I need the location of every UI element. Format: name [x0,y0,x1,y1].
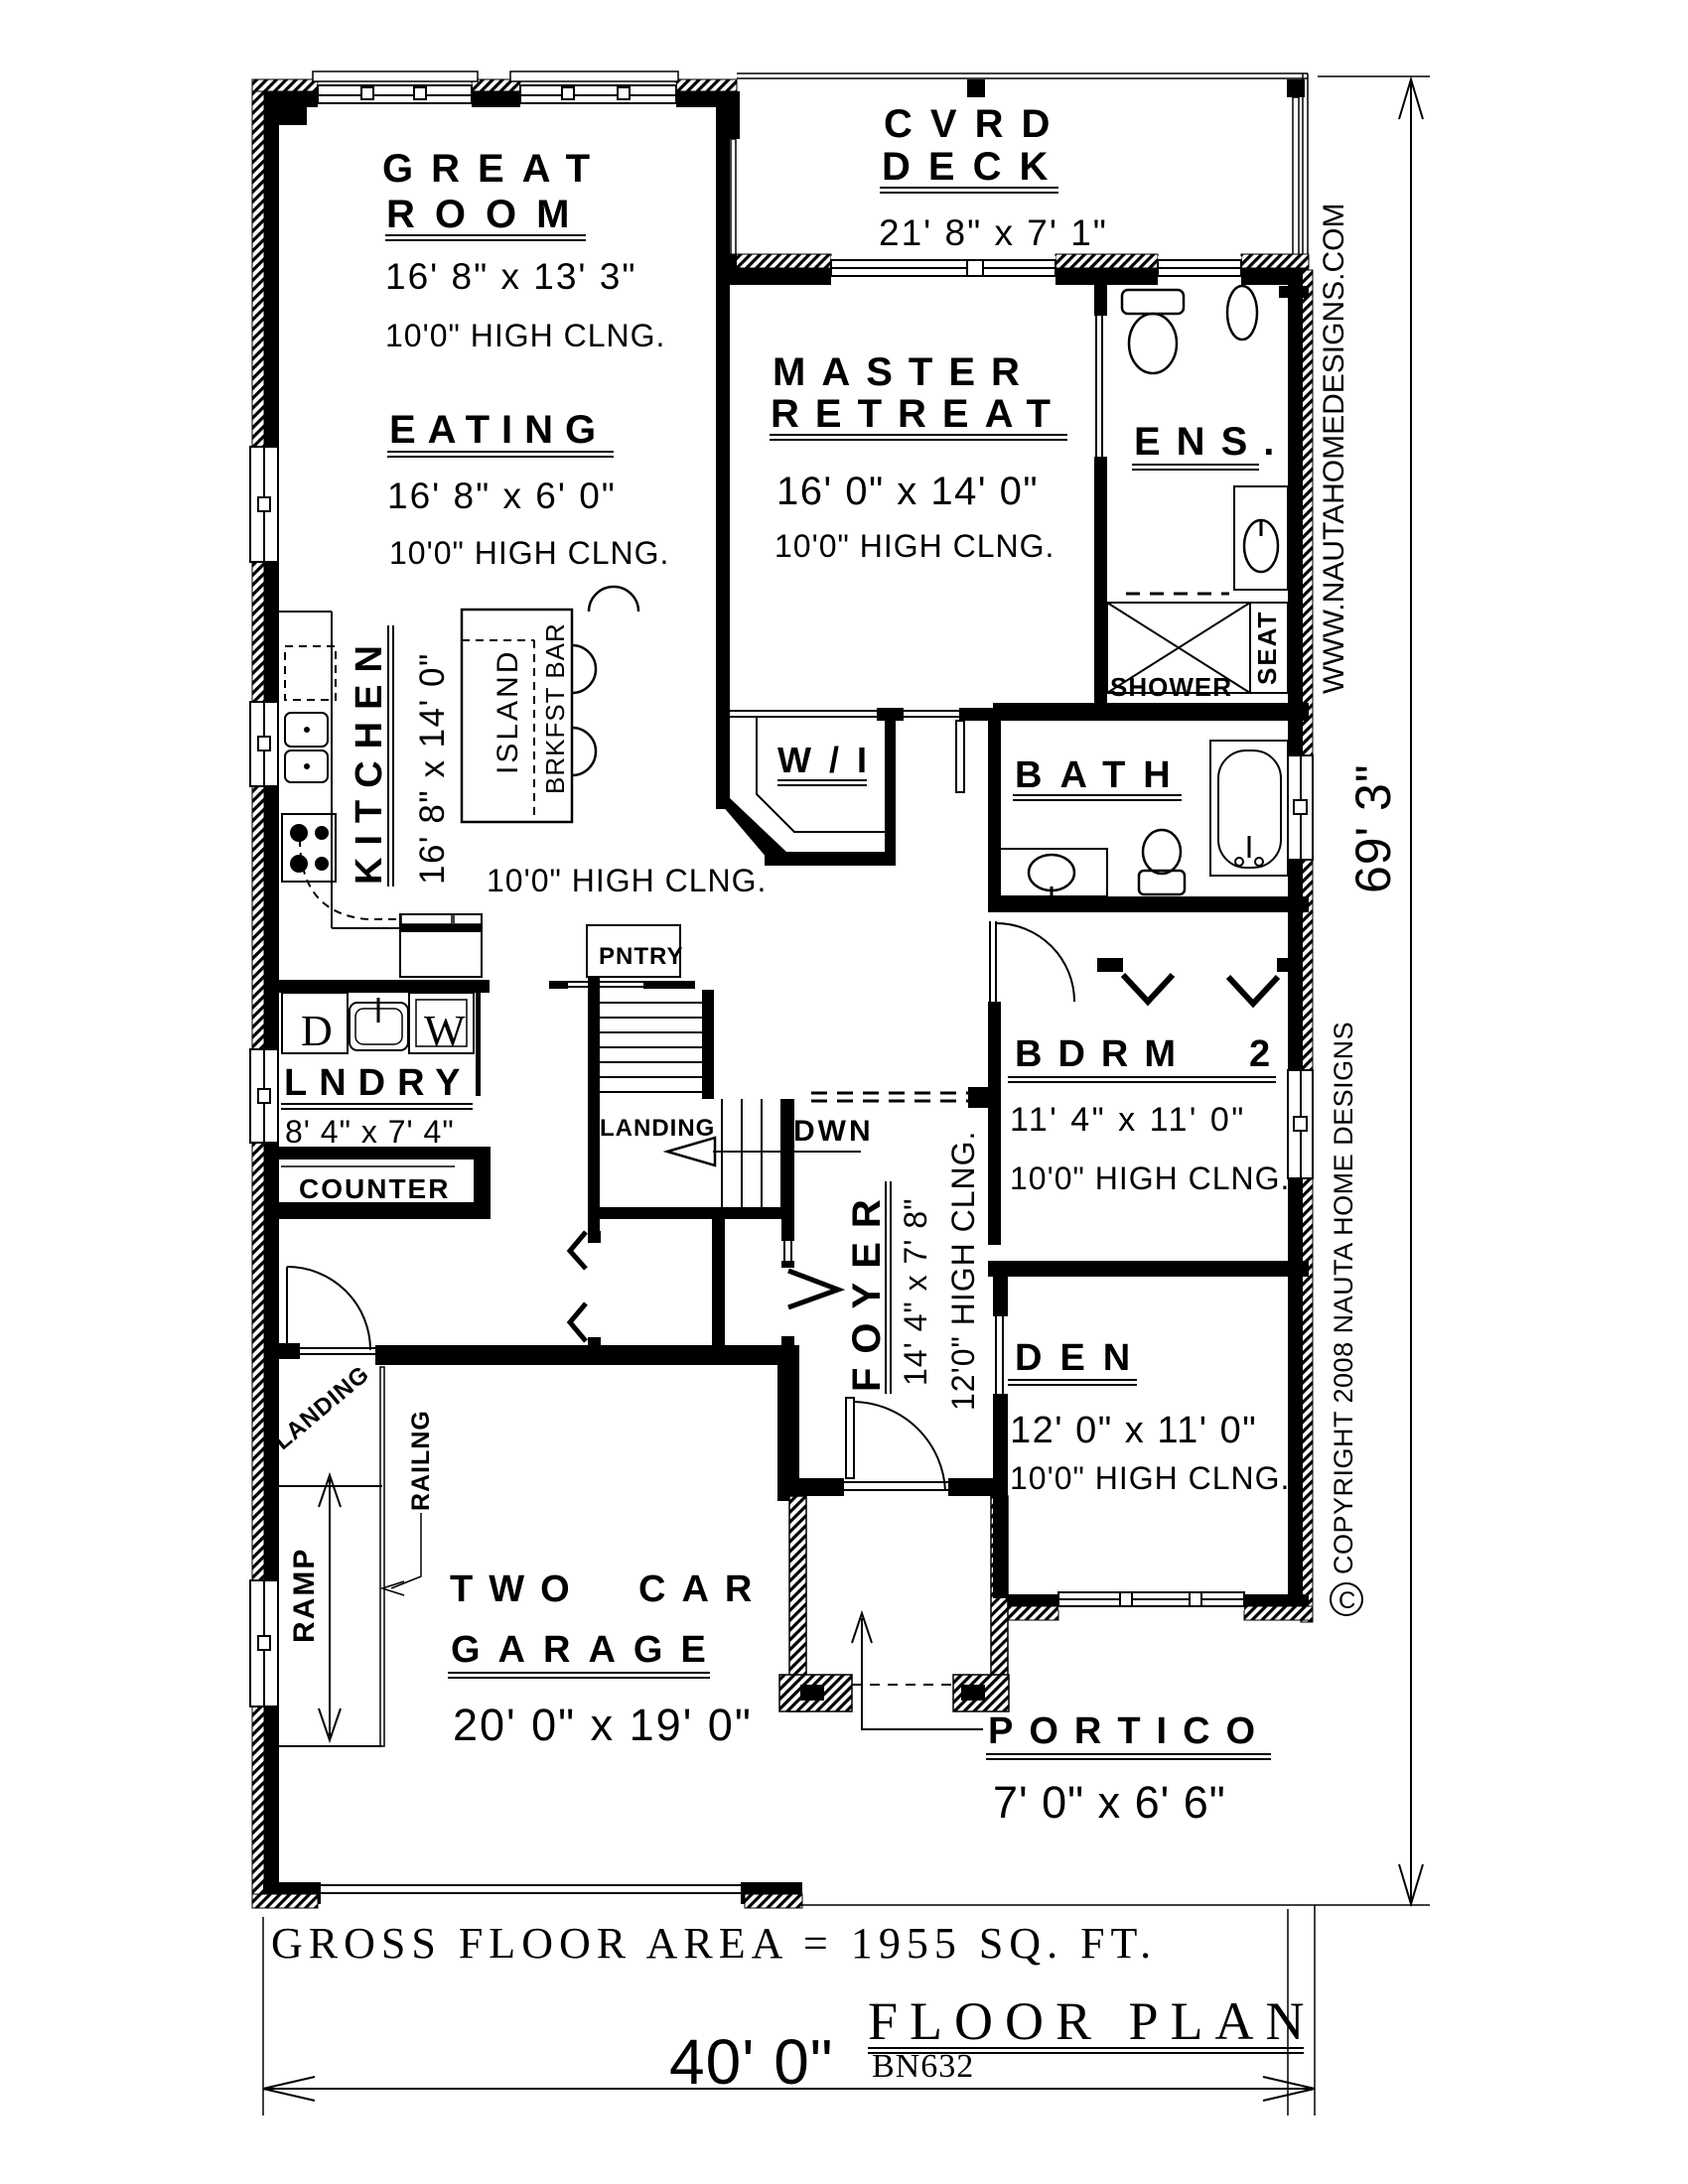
svg-text:ROOM: ROOM [386,193,589,236]
svg-text:COPYRIGHT 2008 NAUTA HOME DESI: COPYRIGHT 2008 NAUTA HOME DESIGNS [1329,1022,1358,1574]
svg-text:BDRM: BDRM [1015,1033,1192,1075]
svg-text:DWN: DWN [793,1115,874,1148]
svg-text:RAILNG: RAILNG [407,1410,435,1511]
svg-text:GREAT: GREAT [382,147,608,191]
svg-text:BN632: BN632 [872,2048,974,2085]
svg-text:EATING: EATING [389,408,608,452]
svg-text:DECK: DECK [882,145,1065,189]
svg-text:BRKFST BAR: BRKFST BAR [540,622,570,794]
svg-text:W / I: W / I [777,740,871,780]
svg-text:69' 3": 69' 3" [1345,763,1401,893]
svg-text:14' 4" x 7' 8": 14' 4" x 7' 8" [898,1198,933,1386]
svg-text:7' 0" x 6' 6": 7' 0" x 6' 6" [993,1777,1226,1828]
svg-text:20' 0" x 19' 0": 20' 0" x 19' 0" [453,1700,753,1750]
svg-text:FOYER: FOYER [845,1185,889,1392]
svg-text:16' 8" x 6' 0": 16' 8" x 6' 0" [387,476,617,516]
svg-text:12'0" HIGH CLNG.: 12'0" HIGH CLNG. [945,1131,981,1411]
svg-text:10'0" HIGH CLNG.: 10'0" HIGH CLNG. [487,863,767,898]
svg-text:21' 8" x 7' 1": 21' 8" x 7' 1" [879,212,1108,253]
svg-text:GROSS FLOOR AREA = 1955 SQ. FT: GROSS FLOOR AREA = 1955 SQ. FT. [271,1919,1157,1968]
svg-text:CVRD: CVRD [884,102,1067,146]
svg-text:MASTER: MASTER [773,350,1036,394]
svg-text:COUNTER: COUNTER [299,1173,450,1204]
svg-text:40' 0": 40' 0" [669,2026,834,2098]
svg-text:10'0" HIGH CLNG.: 10'0" HIGH CLNG. [389,535,669,571]
svg-text:DEN: DEN [1015,1337,1148,1379]
svg-text:ISLAND: ISLAND [492,649,524,774]
svg-text:12' 0" x 11' 0": 12' 0" x 11' 0" [1010,1410,1257,1451]
svg-text:16' 8" x 13' 3": 16' 8" x 13' 3" [385,256,636,297]
svg-text:PORTICO: PORTICO [988,1710,1271,1752]
svg-text:D: D [301,1007,333,1055]
svg-text:LANDING: LANDING [600,1115,715,1142]
svg-text:16' 0" x 14' 0": 16' 0" x 14' 0" [776,470,1039,513]
svg-text:16' 8" x 14' 0": 16' 8" x 14' 0" [413,652,452,885]
svg-text:RETREAT: RETREAT [771,392,1066,436]
svg-text:RAMP: RAMP [288,1548,321,1643]
svg-text:SHOWER: SHOWER [1110,672,1232,702]
svg-text:11' 4" x 11' 0": 11' 4" x 11' 0" [1010,1101,1246,1139]
svg-text:ENS.: ENS. [1134,420,1290,464]
svg-text:10'0" HIGH CLNG.: 10'0" HIGH CLNG. [1010,1160,1290,1196]
svg-text:10'0" HIGH CLNG.: 10'0" HIGH CLNG. [385,318,665,353]
svg-text:FLOOR PLAN: FLOOR PLAN [868,1991,1317,2051]
svg-text:C: C [1338,1587,1355,1614]
svg-text:10'0" HIGH CLNG.: 10'0" HIGH CLNG. [1010,1460,1290,1496]
svg-text:WWW.NAUTAHOMEDESIGNS.COM: WWW.NAUTAHOMEDESIGNS.COM [1318,204,1350,694]
svg-text:KITCHEN: KITCHEN [349,633,390,885]
svg-text:10'0" HIGH CLNG.: 10'0" HIGH CLNG. [774,528,1055,564]
svg-text:CAR: CAR [638,1569,768,1610]
svg-text:GARAGE: GARAGE [451,1629,724,1671]
svg-text:2: 2 [1249,1033,1270,1075]
svg-text:8' 4" x 7' 4": 8' 4" x 7' 4" [285,1114,455,1150]
svg-text:W: W [424,1007,466,1055]
svg-text:BATH: BATH [1015,754,1189,796]
svg-text:SEAT: SEAT [1252,611,1282,685]
svg-text:LNDRY: LNDRY [284,1062,472,1104]
svg-text:TWO: TWO [450,1569,586,1610]
svg-text:PNTRY: PNTRY [599,943,683,970]
